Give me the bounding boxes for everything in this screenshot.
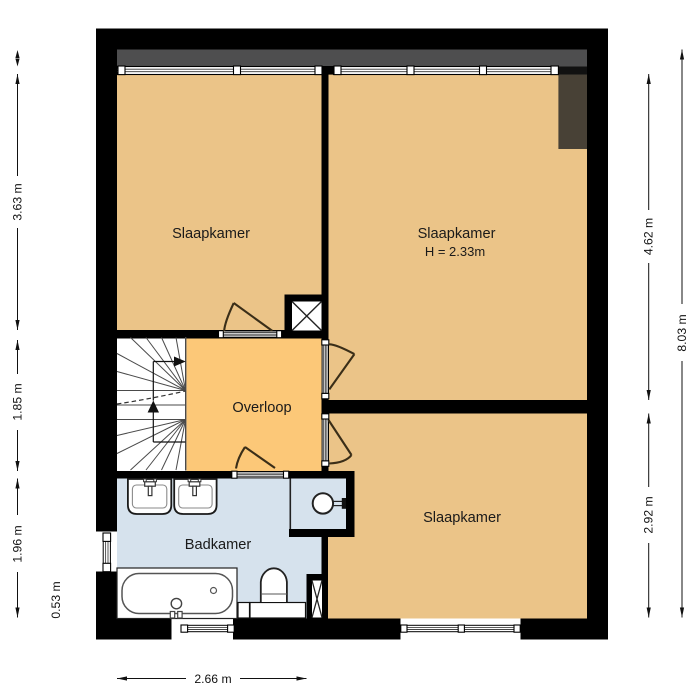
svg-text:4.62 m: 4.62 m xyxy=(642,218,656,255)
svg-text:1.96 m: 1.96 m xyxy=(11,525,25,562)
svg-text:Slaapkamer: Slaapkamer xyxy=(423,510,501,526)
svg-text:0.53 m: 0.53 m xyxy=(49,581,63,618)
svg-text:1.85 m: 1.85 m xyxy=(11,383,25,420)
svg-text:Slaapkamer: Slaapkamer xyxy=(418,226,496,242)
svg-text:H = 2.33m: H = 2.33m xyxy=(425,244,485,259)
svg-text:8.03 m: 8.03 m xyxy=(675,314,689,351)
svg-text:Badkamer: Badkamer xyxy=(185,537,252,553)
svg-text:3.63 m: 3.63 m xyxy=(11,183,25,220)
svg-text:Slaapkamer: Slaapkamer xyxy=(172,226,250,242)
svg-text:2.92 m: 2.92 m xyxy=(642,496,656,533)
svg-text:Overloop: Overloop xyxy=(232,400,291,416)
svg-text:2.66 m: 2.66 m xyxy=(194,672,231,686)
